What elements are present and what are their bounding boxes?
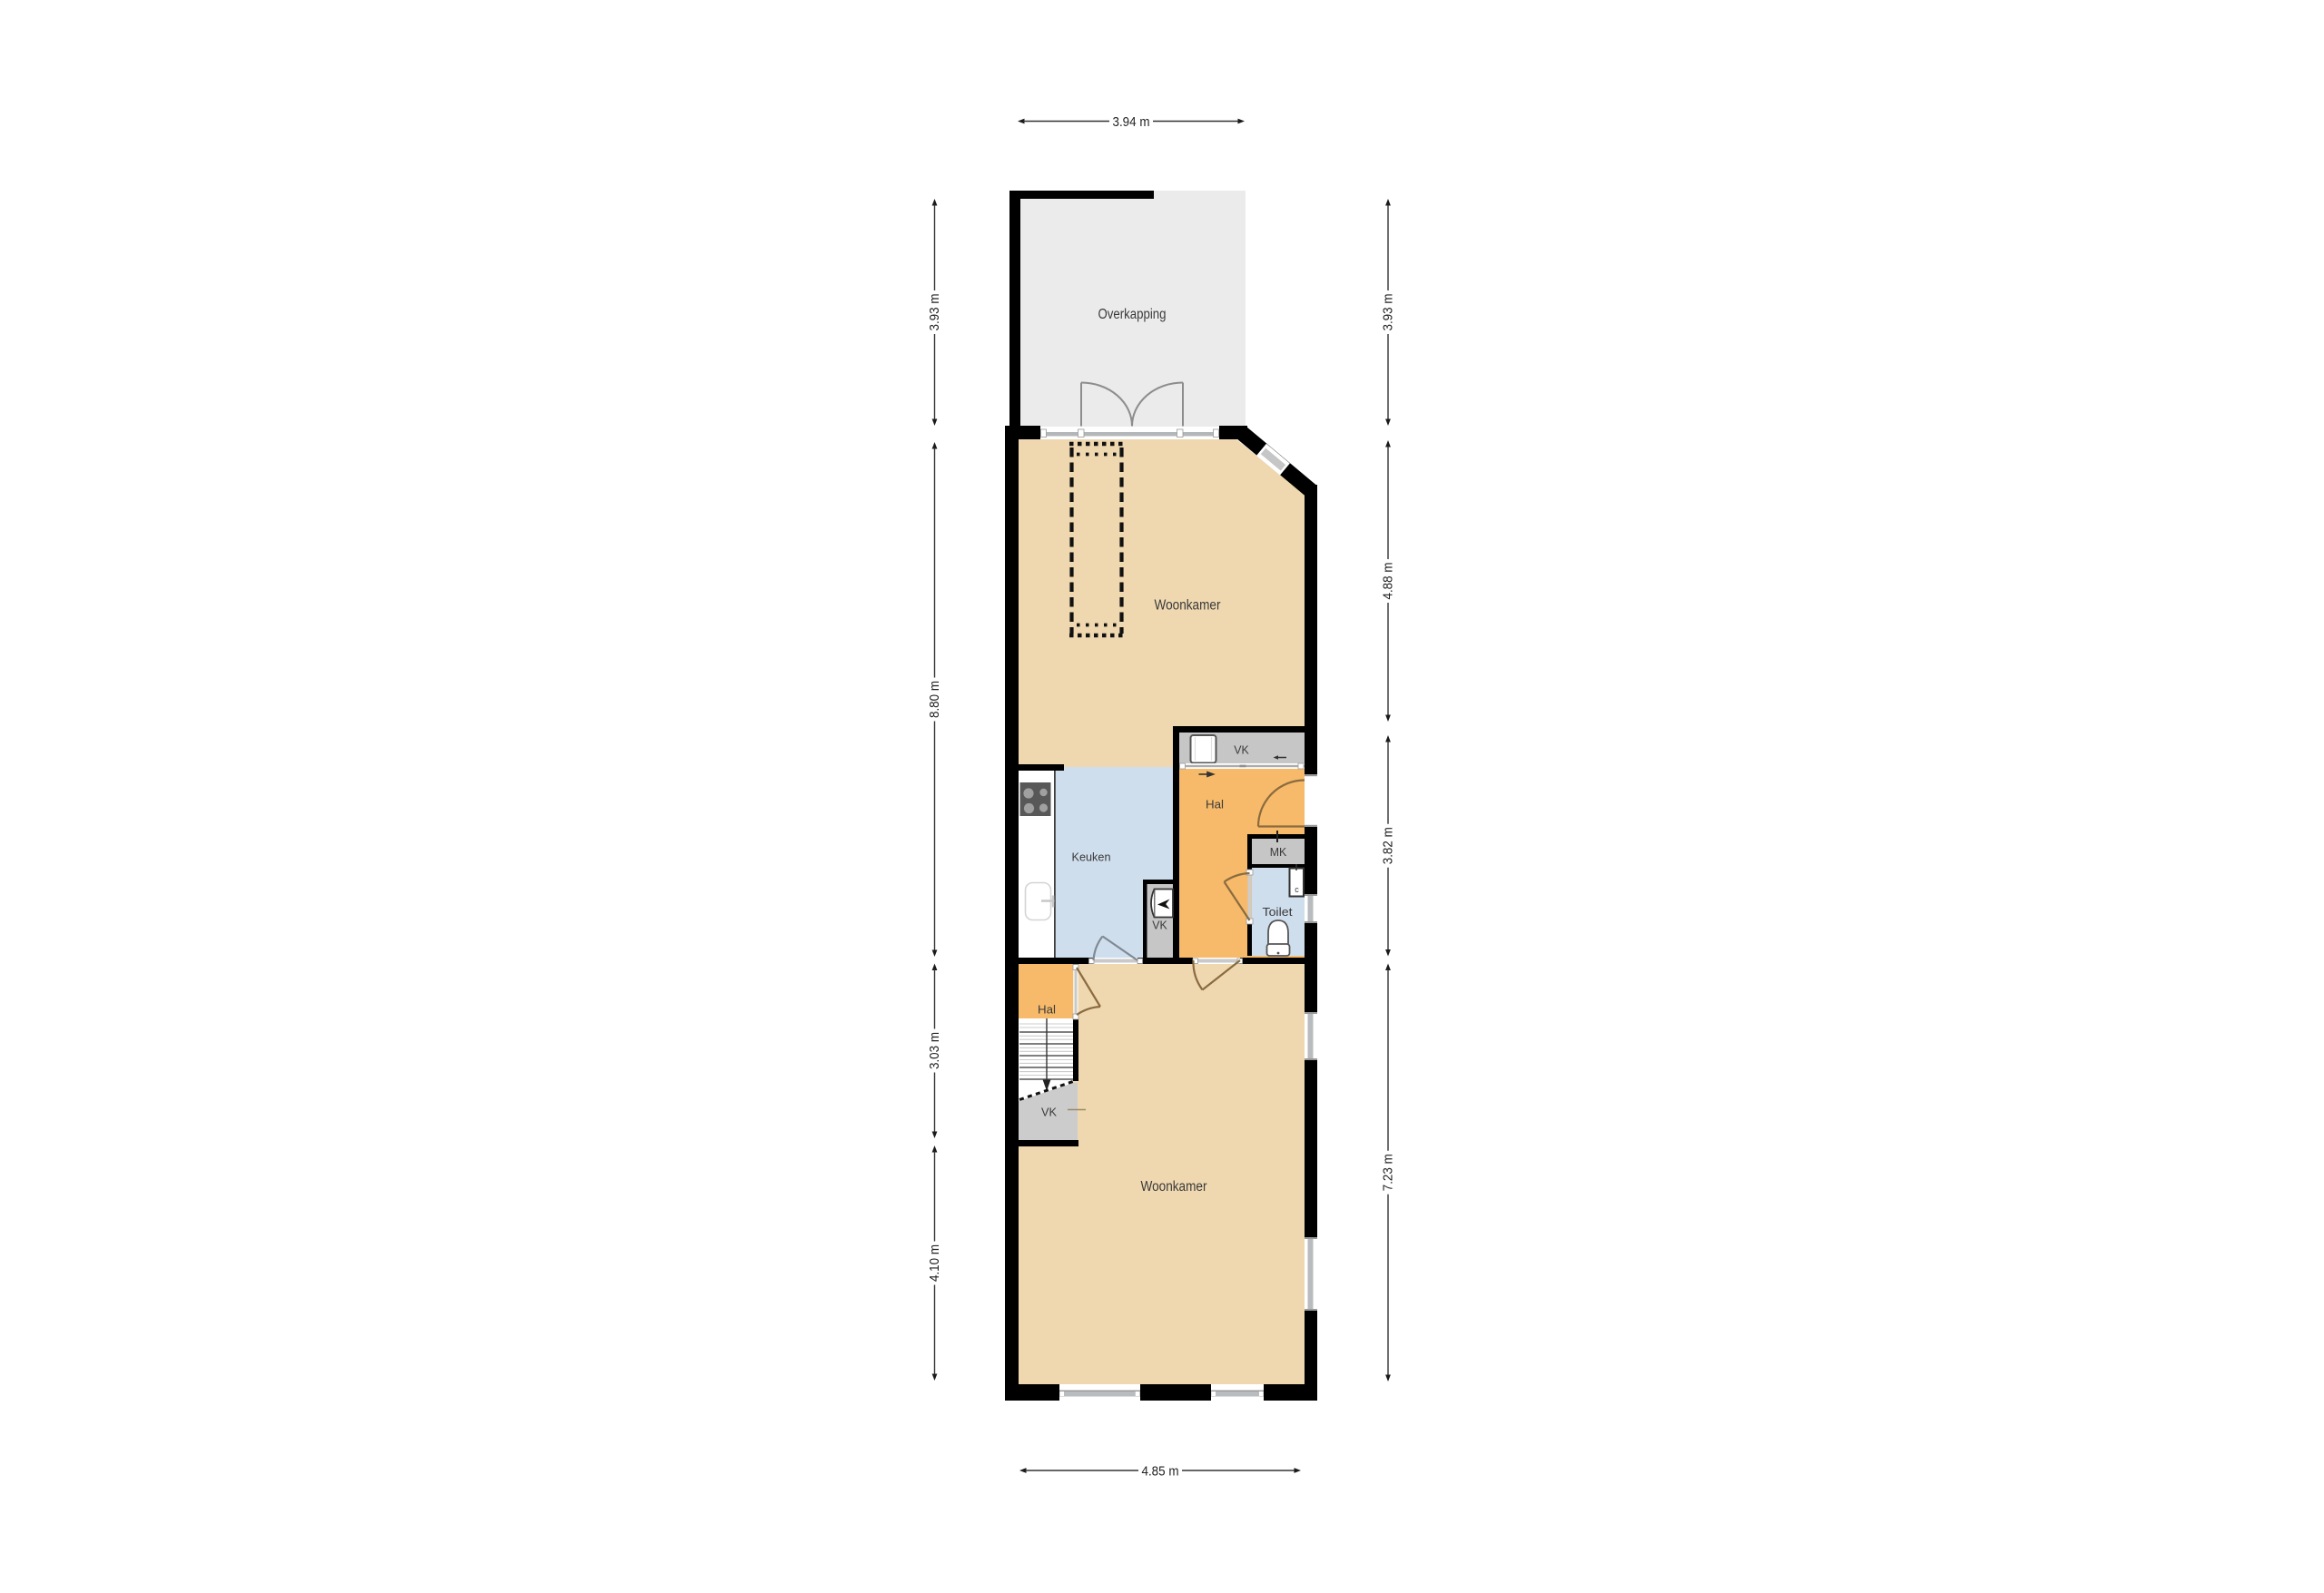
svg-text:VK: VK bbox=[1152, 919, 1167, 932]
svg-text:VK: VK bbox=[1041, 1106, 1057, 1119]
svg-text:4.10 m: 4.10 m bbox=[927, 1244, 942, 1282]
svg-text:Overkapping: Overkapping bbox=[1098, 307, 1167, 322]
svg-text:Hal: Hal bbox=[1206, 798, 1224, 811]
svg-text:Woonkamer: Woonkamer bbox=[1141, 1179, 1207, 1195]
svg-text:3.82 m: 3.82 m bbox=[1381, 827, 1396, 864]
svg-text:7.23 m: 7.23 m bbox=[1381, 1154, 1396, 1191]
svg-text:3.94 m: 3.94 m bbox=[1113, 114, 1150, 130]
svg-text:Woonkamer: Woonkamer bbox=[1155, 598, 1221, 614]
svg-text:4.88 m: 4.88 m bbox=[1381, 563, 1396, 600]
svg-text:c: c bbox=[1295, 885, 1299, 894]
svg-text:Keuken: Keuken bbox=[1072, 851, 1111, 864]
svg-text:3.93 m: 3.93 m bbox=[927, 294, 942, 331]
svg-text:Hal: Hal bbox=[1038, 1003, 1056, 1017]
svg-text:VK: VK bbox=[1234, 743, 1249, 757]
svg-text:3.03 m: 3.03 m bbox=[927, 1032, 942, 1069]
svg-text:3.93 m: 3.93 m bbox=[1381, 294, 1396, 331]
svg-text:MK: MK bbox=[1270, 845, 1287, 859]
svg-text:Toilet: Toilet bbox=[1263, 905, 1293, 919]
svg-text:8.80 m: 8.80 m bbox=[927, 681, 942, 718]
svg-text:4.85 m: 4.85 m bbox=[1142, 1464, 1179, 1480]
